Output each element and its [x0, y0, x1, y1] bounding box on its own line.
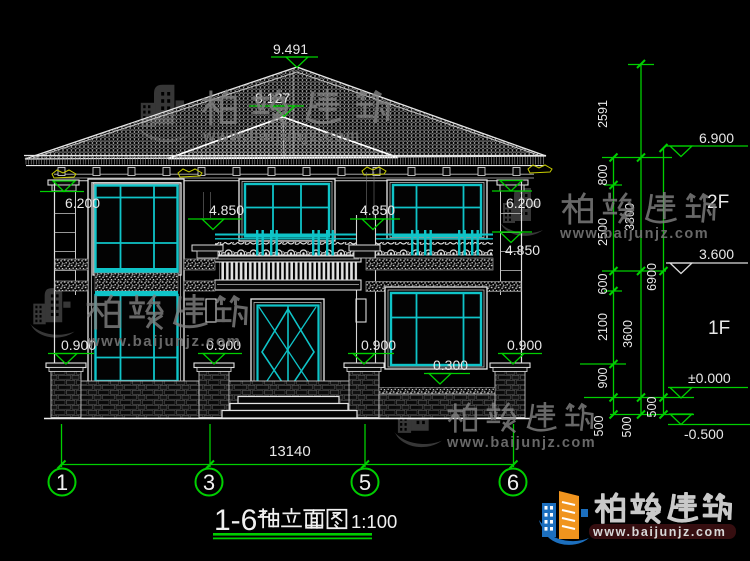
- svg-text:1-6: 1-6: [214, 504, 257, 537]
- svg-text:5: 5: [359, 470, 371, 495]
- svg-text:3.600: 3.600: [699, 246, 734, 262]
- svg-text:1F: 1F: [708, 318, 730, 339]
- svg-text:500: 500: [592, 416, 606, 437]
- svg-text:www.baijunjz.com: www.baijunjz.com: [592, 525, 726, 539]
- svg-text:0.300: 0.300: [433, 357, 468, 373]
- svg-text:2F: 2F: [707, 192, 729, 213]
- svg-text:www.baijunjz.com: www.baijunjz.com: [446, 435, 596, 451]
- svg-text:500: 500: [620, 417, 634, 438]
- svg-text:1:100: 1:100: [351, 511, 397, 532]
- svg-text:3: 3: [203, 470, 215, 495]
- svg-text:4.850: 4.850: [360, 202, 395, 218]
- svg-text:www.baijunjz.com: www.baijunjz.com: [559, 226, 709, 242]
- svg-text:6900: 6900: [645, 263, 659, 291]
- svg-text:1: 1: [56, 470, 68, 495]
- svg-text:-0.500: -0.500: [684, 426, 724, 442]
- svg-text:6: 6: [507, 470, 519, 495]
- svg-text:6.900: 6.900: [699, 130, 734, 146]
- svg-text:500: 500: [645, 397, 659, 418]
- svg-text:www.baijunjz.com: www.baijunjz.com: [87, 333, 241, 350]
- svg-text:4.850: 4.850: [209, 202, 244, 218]
- svg-text:13140: 13140: [269, 443, 311, 460]
- svg-text:www.baijunjz.com: www.baijunjz.com: [202, 128, 361, 145]
- svg-text:6.200: 6.200: [65, 195, 100, 211]
- svg-text:0.900: 0.900: [361, 337, 396, 353]
- svg-text:6.200: 6.200: [506, 195, 541, 211]
- svg-text:4.850: 4.850: [505, 242, 540, 258]
- svg-text:3600: 3600: [621, 320, 635, 348]
- svg-text:600: 600: [596, 274, 610, 295]
- svg-text:9.491: 9.491: [273, 41, 308, 57]
- svg-text:0.900: 0.900: [507, 337, 542, 353]
- svg-text:900: 900: [596, 368, 610, 389]
- svg-text:2100: 2100: [596, 313, 610, 341]
- svg-text:2591: 2591: [596, 100, 610, 128]
- svg-text:800: 800: [596, 165, 610, 186]
- svg-text:±0.000: ±0.000: [688, 370, 731, 386]
